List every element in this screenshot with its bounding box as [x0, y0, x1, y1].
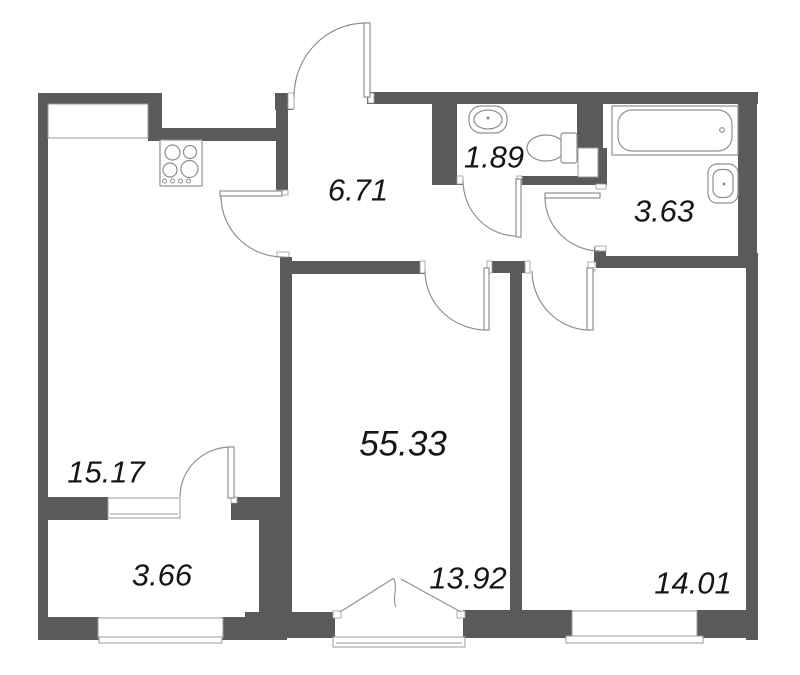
toilet-icon — [527, 133, 577, 163]
wall — [432, 104, 457, 185]
jamb — [420, 261, 425, 273]
jamb — [457, 611, 465, 618]
vent-shaft — [48, 104, 148, 138]
vent-shaft — [578, 148, 598, 177]
wall — [148, 128, 288, 141]
living-room-door — [425, 268, 489, 330]
sink-icon — [469, 106, 507, 133]
jamb — [457, 176, 463, 184]
wall — [367, 92, 758, 104]
bedroom-door — [532, 268, 593, 330]
wall — [38, 93, 162, 104]
jamb — [525, 261, 530, 273]
wall — [746, 253, 758, 640]
wall — [487, 261, 530, 273]
wall — [596, 256, 758, 268]
window-bedroom — [566, 611, 703, 643]
wall — [738, 92, 757, 268]
area-label-living-room: 13.92 — [429, 563, 507, 594]
wall — [38, 617, 99, 640]
bathtub-icon — [612, 106, 738, 155]
floor-plan: 6.71 1.89 3.63 15.17 55.33 3.66 13.92 14… — [0, 0, 800, 675]
wall — [48, 497, 108, 520]
wall — [577, 104, 603, 148]
window-kitchen-balcony — [108, 498, 180, 518]
wall — [259, 520, 283, 617]
window-sill-balcony-door — [333, 637, 465, 647]
entrance-door — [294, 23, 370, 97]
wall — [276, 104, 288, 195]
area-label-bedroom: 14.01 — [654, 568, 732, 599]
kitchen-door — [220, 191, 283, 257]
wall — [510, 272, 522, 610]
doors — [180, 23, 600, 612]
wall — [463, 610, 572, 638]
jamb — [595, 246, 606, 251]
area-label-kitchen-living: 15.17 — [67, 457, 145, 488]
stove-icon — [160, 140, 202, 186]
window-balcony — [98, 618, 223, 643]
jamb — [288, 93, 294, 109]
sink-icon — [708, 164, 738, 203]
area-label-total: 55.33 — [359, 427, 447, 462]
area-label-hallway: 6.71 — [328, 175, 388, 206]
bathroom-door — [545, 193, 600, 251]
balcony-door — [180, 447, 234, 498]
area-label-bathroom: 3.63 — [634, 196, 694, 227]
wall — [231, 497, 292, 520]
wall — [38, 93, 48, 640]
wall — [280, 612, 335, 638]
wall — [288, 261, 425, 274]
wall — [222, 617, 287, 640]
area-label-wc: 1.89 — [464, 142, 524, 173]
jamb — [333, 611, 341, 618]
jamb — [596, 184, 606, 189]
jamb — [277, 252, 289, 257]
wc-door — [463, 179, 521, 237]
area-label-balcony: 3.66 — [132, 560, 192, 591]
